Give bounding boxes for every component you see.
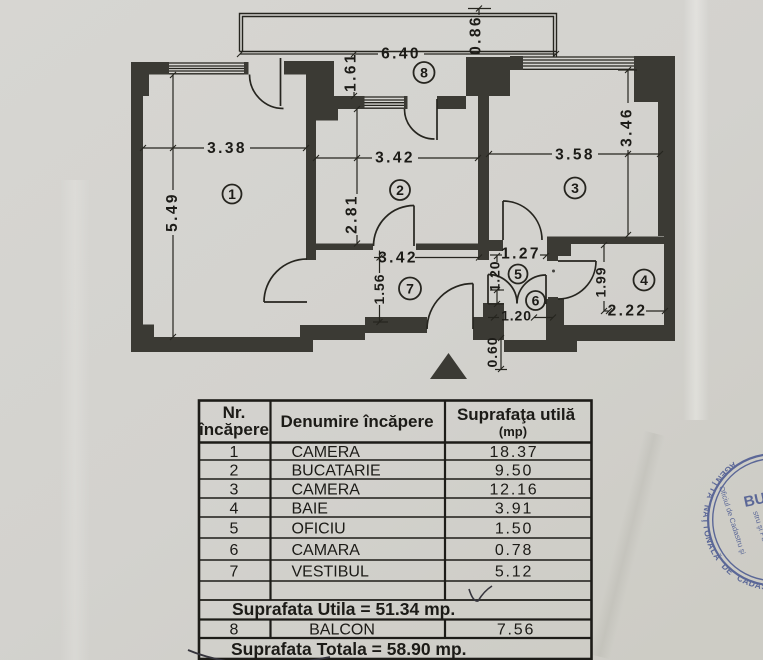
svg-text:3: 3 [230, 482, 239, 499]
svg-text:Denumire încăpere: Denumire încăpere [280, 412, 433, 431]
svg-text:4: 4 [640, 272, 648, 288]
svg-text:OFICIU: OFICIU [292, 521, 346, 538]
svg-text:1.50: 1.50 [495, 521, 533, 538]
svg-text:CAMARA: CAMARA [292, 542, 361, 559]
svg-text:12.16: 12.16 [489, 482, 538, 499]
svg-text:3.38: 3.38 [207, 140, 247, 157]
svg-text:2: 2 [230, 463, 239, 480]
svg-text:1: 1 [228, 186, 236, 202]
svg-text:3.46: 3.46 [619, 107, 636, 147]
svg-text:5.12: 5.12 [495, 564, 533, 581]
svg-text:4: 4 [230, 501, 239, 518]
svg-text:0.86: 0.86 [468, 15, 485, 55]
svg-text:BAIE: BAIE [292, 501, 328, 518]
svg-text:7.56: 7.56 [497, 622, 535, 639]
svg-text:8: 8 [230, 622, 239, 639]
svg-text:6: 6 [532, 293, 540, 309]
svg-text:1: 1 [230, 444, 239, 461]
svg-text:1.56: 1.56 [371, 274, 387, 305]
svg-text:2: 2 [396, 182, 404, 198]
svg-text:BUCATARIE: BUCATARIE [292, 463, 381, 480]
svg-text:3.91: 3.91 [495, 501, 533, 518]
svg-text:3.58: 3.58 [555, 147, 595, 164]
svg-text:1.99: 1.99 [593, 267, 609, 298]
svg-text:7: 7 [406, 281, 414, 297]
svg-text:2.81: 2.81 [344, 194, 361, 234]
svg-text:1.27: 1.27 [501, 246, 541, 263]
svg-text:0.78: 0.78 [495, 542, 533, 559]
svg-text:1.61: 1.61 [343, 52, 360, 92]
svg-text:Suprafaţa utilă: Suprafaţa utilă [457, 405, 576, 424]
svg-text:3.42: 3.42 [375, 150, 415, 167]
svg-text:18.37: 18.37 [489, 444, 538, 461]
svg-text:BALCON: BALCON [309, 622, 375, 639]
svg-text:6: 6 [230, 542, 239, 559]
svg-text:9.50: 9.50 [495, 463, 533, 480]
svg-text:2.22: 2.22 [608, 303, 648, 320]
svg-text:0.60: 0.60 [484, 337, 500, 368]
svg-text:5: 5 [514, 266, 522, 282]
svg-text:CAMERA: CAMERA [292, 444, 361, 461]
svg-text:3: 3 [571, 180, 579, 196]
svg-text:3.42: 3.42 [378, 250, 418, 267]
svg-text:Suprafata Utila = 51.34 mp.: Suprafata Utila = 51.34 mp. [232, 599, 455, 619]
svg-text:1.20: 1.20 [487, 261, 503, 292]
svg-text:Suprafata Totala = 58.90 mp.: Suprafata Totala = 58.90 mp. [231, 639, 467, 659]
svg-text:8: 8 [420, 65, 428, 81]
svg-text:6.40: 6.40 [381, 46, 421, 63]
svg-text:5.49: 5.49 [164, 192, 181, 232]
svg-text:1.20: 1.20 [501, 308, 532, 324]
svg-text:VESTIBUL: VESTIBUL [292, 564, 369, 581]
svg-text:A: A [701, 511, 711, 518]
svg-text:(mp): (mp) [499, 424, 527, 439]
svg-text:7: 7 [230, 564, 239, 581]
svg-text:încăpere: încăpere [198, 420, 269, 439]
svg-text:CAMERA: CAMERA [292, 482, 361, 499]
svg-text:5: 5 [230, 521, 239, 538]
